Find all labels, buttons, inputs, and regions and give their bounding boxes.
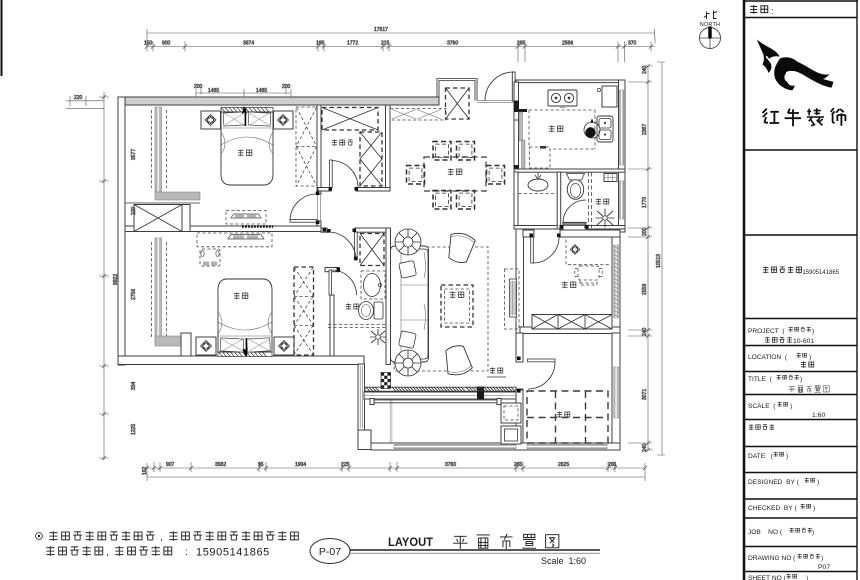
svg-text:P-07: P-07 (319, 546, 341, 558)
svg-text:17617: 17617 (374, 27, 388, 33)
svg-text:900: 900 (162, 41, 171, 47)
svg-text:2756: 2756 (131, 289, 137, 300)
svg-text:10-601: 10-601 (793, 338, 814, 345)
svg-text:): ) (809, 354, 811, 361)
svg-text:1225: 1225 (131, 424, 137, 435)
svg-text:): ) (813, 505, 815, 512)
svg-text:3071: 3071 (642, 389, 648, 400)
svg-text:3760: 3760 (445, 462, 456, 468)
svg-text:215: 215 (381, 41, 390, 47)
svg-text:SHEET NO (: SHEET NO ( (748, 575, 787, 580)
svg-text:220: 220 (131, 206, 137, 215)
svg-text:): ) (800, 376, 802, 383)
svg-text:265: 265 (608, 462, 617, 468)
svg-text:3674: 3674 (243, 41, 254, 47)
svg-text:CHECKED BY (: CHECKED BY ( (748, 505, 798, 512)
svg-text:200: 200 (282, 84, 291, 90)
svg-text:95: 95 (258, 462, 264, 468)
svg-text:2566: 2566 (562, 41, 573, 47)
svg-text:265: 265 (517, 41, 526, 47)
svg-text:15905141865: 15905141865 (196, 547, 270, 559)
svg-text:: 15905141865: : 15905141865 (799, 270, 840, 276)
svg-text:2367: 2367 (642, 124, 648, 135)
svg-text:3577: 3577 (131, 149, 137, 160)
svg-text:DESIGNED BY (: DESIGNED BY ( (748, 479, 800, 486)
svg-text:225: 225 (341, 462, 350, 468)
svg-text::: : (771, 6, 774, 16)
svg-text:240: 240 (642, 65, 648, 74)
svg-text:200: 200 (642, 227, 648, 236)
svg-text:): ) (817, 479, 819, 486)
svg-text:1485: 1485 (208, 88, 219, 94)
svg-text:Scale 1:60: Scale 1:60 (541, 556, 586, 566)
svg-text:LAYOUT: LAYOUT (388, 537, 433, 549)
svg-text:195: 195 (316, 41, 325, 47)
svg-text:1772: 1772 (347, 41, 358, 47)
svg-text:334: 334 (131, 381, 137, 390)
svg-text:): ) (812, 529, 814, 536)
svg-text:1:60: 1:60 (812, 412, 825, 419)
svg-text:DATE (: DATE ( (748, 453, 774, 460)
svg-text:2559: 2559 (642, 284, 648, 295)
svg-text:): ) (806, 575, 808, 580)
svg-text:): ) (786, 453, 788, 460)
svg-text:): ) (790, 403, 792, 410)
svg-text::: : (185, 547, 188, 558)
svg-text:): ) (821, 555, 823, 562)
svg-text:9922: 9922 (113, 274, 119, 285)
svg-text:,: , (106, 547, 109, 558)
svg-text:3582: 3582 (215, 462, 226, 468)
svg-text:1770: 1770 (642, 197, 648, 208)
svg-text:150: 150 (144, 41, 153, 47)
svg-text:240: 240 (642, 327, 648, 336)
svg-text:1994: 1994 (295, 462, 306, 468)
svg-text:220: 220 (74, 95, 83, 101)
svg-text:3760: 3760 (447, 41, 458, 47)
svg-text:907: 907 (166, 462, 175, 468)
svg-text:240: 240 (642, 443, 648, 452)
svg-text:162: 162 (142, 466, 148, 475)
svg-text:P07: P07 (818, 564, 830, 571)
svg-text:200: 200 (194, 84, 203, 90)
svg-text:1485: 1485 (256, 88, 267, 94)
svg-text:PROJECT (: PROJECT ( (748, 328, 785, 335)
svg-text:,: , (160, 532, 163, 543)
svg-text:JOB NO (: JOB NO ( (748, 529, 783, 536)
svg-text:TITLE (: TITLE ( (748, 376, 773, 383)
svg-text:): ) (812, 328, 814, 335)
svg-text:2625: 2625 (558, 462, 569, 468)
svg-text:265: 265 (514, 462, 523, 468)
svg-text:SCALE (: SCALE ( (748, 403, 776, 410)
svg-text:DRAWING NO (: DRAWING NO ( (748, 555, 796, 562)
svg-text:10513: 10513 (656, 254, 662, 268)
svg-text:LOCATION (: LOCATION ( (748, 354, 788, 361)
svg-text:370: 370 (628, 41, 637, 47)
